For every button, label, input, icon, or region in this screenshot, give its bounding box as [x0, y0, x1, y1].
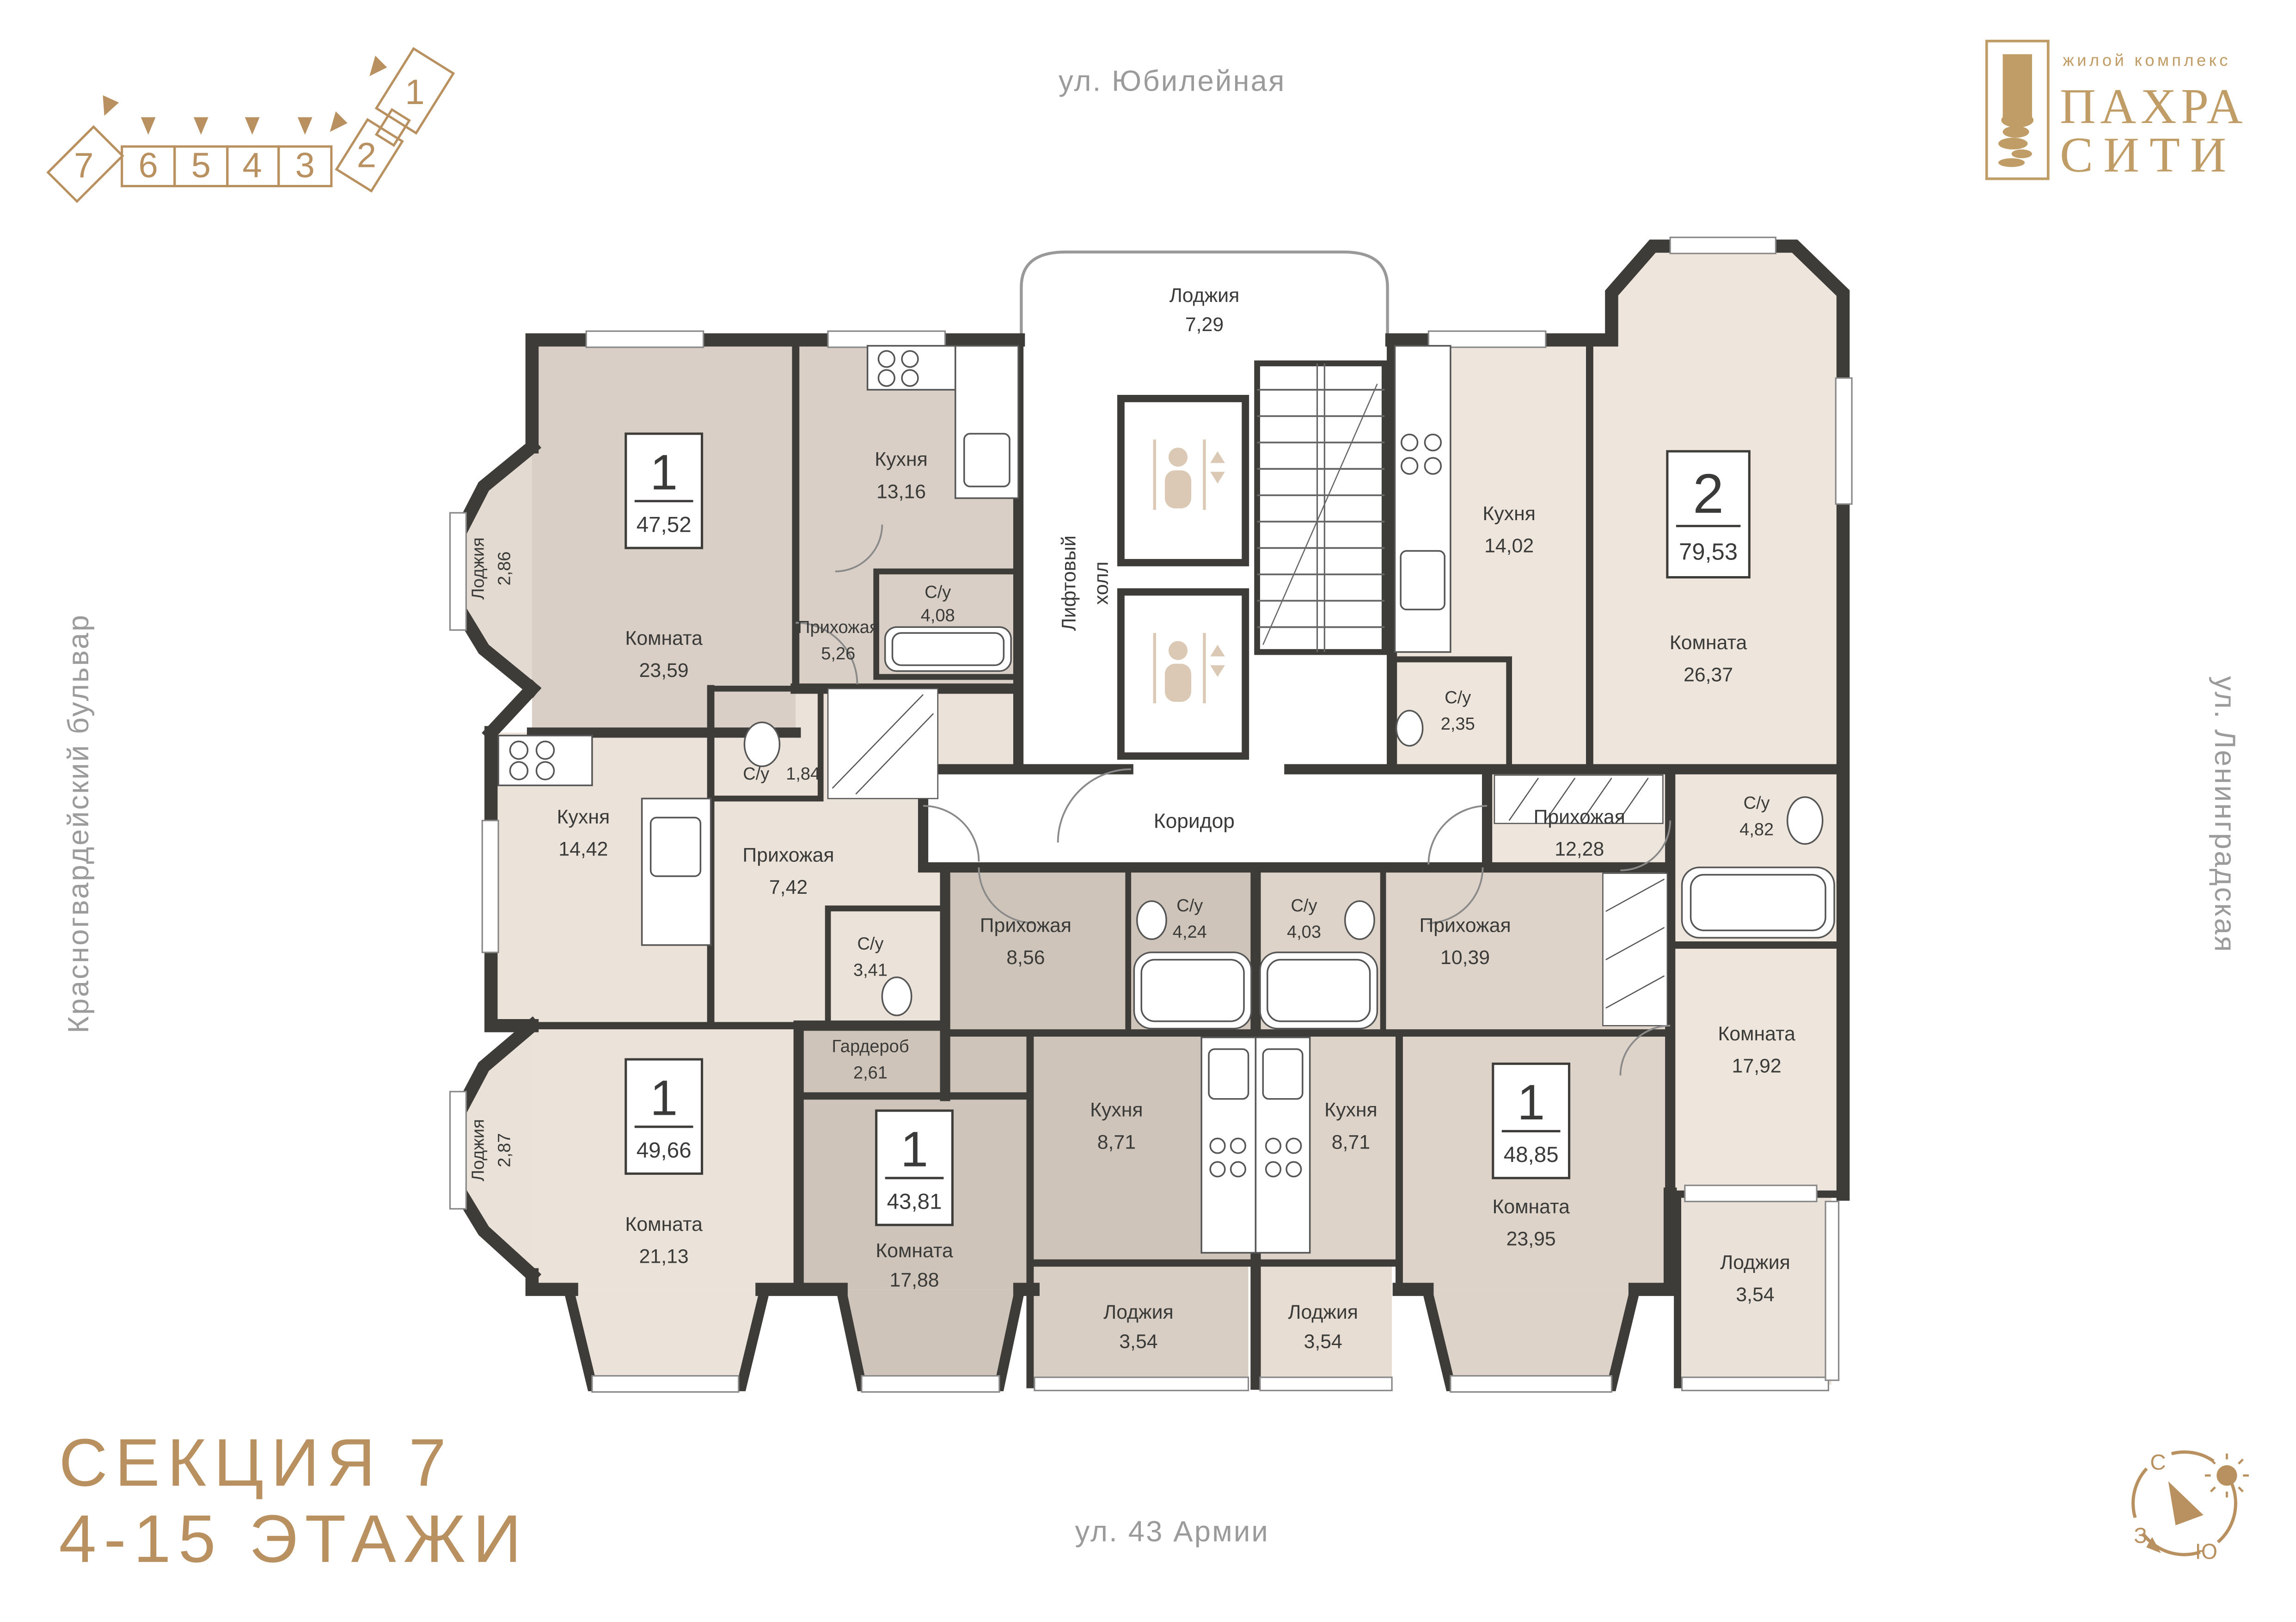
compass-west-label: З [2134, 1524, 2147, 1548]
logo-name-line1: ПАХРА [2060, 79, 2247, 134]
room-label: Лоджия [1103, 1301, 1174, 1323]
room-area: 4,08 [921, 606, 955, 626]
window [828, 331, 945, 347]
room-label: С/у [1176, 896, 1203, 915]
room-label: Прихожая [1419, 914, 1511, 936]
badge-apt-47-52: 1 47,52 [626, 434, 702, 548]
sink [1396, 711, 1423, 746]
loggia-rail [1260, 1377, 1392, 1391]
room-area: 5,26 [821, 644, 855, 664]
room-label: Лоджия [1169, 284, 1240, 307]
kitchen-sink [1263, 1049, 1303, 1099]
section-number: 1 [405, 73, 424, 112]
room-area: 7,42 [769, 876, 808, 898]
street-label-right: ул. Ленинградская [2209, 676, 2241, 953]
room-label: Лоджия [1288, 1301, 1358, 1323]
room-label: Кухня [557, 806, 610, 828]
window [1428, 331, 1546, 347]
badge-rooms-count: 1 [650, 444, 678, 500]
floor-plan-canvas: 1 47,52 2 79,53 1 49,66 1 43,81 1 48,85 [0, 0, 2296, 1622]
room-label: Кухня [1482, 503, 1535, 525]
room-label: С/у [925, 583, 951, 602]
room-area: 12,28 [1555, 838, 1604, 860]
room-area: 26,37 [1684, 664, 1733, 686]
section-number: 2 [357, 135, 376, 175]
logo-tagline: жилой комплекс [2063, 51, 2230, 70]
room-label: Прихожая [980, 914, 1071, 936]
street-label-left: Красногвардейский бульвар [62, 614, 95, 1033]
room-label: Гардероб [832, 1037, 909, 1056]
badge-total-area: 79,53 [1679, 539, 1738, 565]
room-area: 17,88 [890, 1269, 939, 1291]
badge-rooms-count: 1 [650, 1070, 678, 1126]
room-label: С/у [743, 764, 769, 784]
badge-total-area: 48,85 [1504, 1143, 1559, 1167]
loggia-rail [1825, 1202, 1839, 1381]
street-label-top: ул. Юбилейная [1059, 65, 1286, 97]
sink [1137, 901, 1166, 939]
kitchen-sink [1401, 551, 1445, 610]
room-label: Комната [1492, 1196, 1570, 1218]
section-number: 4 [243, 146, 262, 185]
kitchen-sink [651, 817, 701, 876]
room-area: 23,95 [1506, 1228, 1556, 1250]
badge-apt-79-53: 2 79,53 [1667, 451, 1749, 578]
badge-total-area: 43,81 [887, 1189, 942, 1214]
corridor-label: Коридор [1154, 810, 1235, 832]
apt-43-81-bay-area [841, 1290, 1020, 1386]
window [1836, 378, 1852, 504]
apt-48-85-loggia-area [1255, 1263, 1392, 1385]
logo-name-line2: СИТИ [2060, 128, 2236, 183]
bathtub [1134, 952, 1251, 1029]
room-area: 3,54 [1736, 1284, 1774, 1306]
room-area: 3,54 [1119, 1330, 1157, 1352]
window [450, 1092, 466, 1209]
room-label: Кухня [1324, 1099, 1377, 1121]
room-label: С/у [1445, 688, 1471, 707]
street-label-bottom: ул. 43 Армии [1075, 1516, 1269, 1548]
room-area: 2,35 [1441, 714, 1475, 734]
window [1685, 1186, 1817, 1202]
compass-arrow-icon [2168, 1481, 2204, 1525]
section-number: 3 [295, 146, 315, 185]
room-area: 14,42 [558, 838, 608, 860]
room-label: Кухня [1090, 1099, 1143, 1121]
window [592, 1376, 739, 1392]
compass: С З Ю [2133, 1450, 2249, 1564]
room-area: 8,56 [1006, 946, 1045, 969]
room-label: Комната [876, 1240, 953, 1262]
window [862, 1376, 999, 1392]
room-label: Лоджия [468, 537, 488, 600]
floor-plan-page: 1 47,52 2 79,53 1 49,66 1 43,81 1 48,85 [0, 0, 2296, 1622]
apt-48-85-bay-area [1427, 1290, 1635, 1386]
window [482, 821, 498, 952]
room-label: Комната [625, 1213, 703, 1235]
section-diagram: 7 6 5 4 3 2 1 [48, 49, 453, 201]
apt-43-81-wardrobe-area [799, 1026, 945, 1096]
section-title: СЕКЦИЯ 7 4-15 ЭТАЖИ [59, 1425, 528, 1576]
room-label: Комната [625, 627, 703, 649]
room-label: Комната [1670, 632, 1747, 654]
apt-49-66-bay-area [569, 1290, 765, 1386]
bathtub [885, 627, 1011, 671]
room-area: 8,71 [1097, 1131, 1136, 1153]
sink [1788, 797, 1823, 844]
room-area: 21,13 [639, 1246, 689, 1268]
room-label: Прихожая [742, 844, 834, 866]
badge-apt-49-66: 1 49,66 [626, 1059, 702, 1173]
room-area: 3,54 [1304, 1330, 1342, 1352]
room-label: Лоджия [1720, 1251, 1790, 1273]
room-area: 14,02 [1484, 535, 1534, 557]
section-number: 5 [191, 146, 211, 185]
sink [1345, 901, 1374, 939]
logo-column-icon [1998, 54, 2033, 167]
room-area: 23,59 [639, 659, 689, 682]
room-label: Комната [1718, 1023, 1795, 1045]
room-label: С/у [857, 934, 883, 953]
room-area: 8,71 [1332, 1131, 1370, 1153]
sink [744, 722, 779, 766]
badge-rooms-count: 2 [1693, 462, 1724, 525]
compass-north-label: С [2150, 1450, 2166, 1475]
badge-apt-48-85: 1 48,85 [1493, 1064, 1569, 1178]
room-area: 10,39 [1440, 946, 1490, 969]
section-title-line1: СЕКЦИЯ 7 [59, 1425, 453, 1500]
compass-south-label: Ю [2195, 1540, 2217, 1564]
room-area: 4,82 [1739, 820, 1774, 839]
section-number: 6 [139, 146, 158, 185]
section-title-line2: 4-15 ЭТАЖИ [59, 1501, 528, 1576]
room-label: Прихожая [1534, 806, 1625, 828]
kitchen-sink [964, 434, 1010, 486]
kitchen-sink [1209, 1049, 1249, 1099]
badge-apt-43-81: 1 43,81 [876, 1111, 953, 1225]
window [586, 331, 704, 347]
loggia-rail [1682, 1377, 1829, 1391]
loggia-rail [1035, 1377, 1249, 1391]
badge-rooms-count: 1 [1517, 1074, 1545, 1130]
section-number: 7 [74, 146, 93, 185]
room-label: С/у [1744, 793, 1770, 813]
room-area: 17,92 [1732, 1055, 1782, 1077]
bathtub [1682, 867, 1835, 938]
room-label: Лоджия [468, 1119, 488, 1181]
badge-total-area: 49,66 [637, 1138, 692, 1162]
room-area: 2,87 [495, 1133, 514, 1167]
room-area: 2,86 [495, 552, 514, 586]
room-area: 4,24 [1173, 922, 1207, 942]
logo: жилой комплекс ПАХРА СИТИ [1987, 41, 2247, 183]
room-area: 3,41 [853, 961, 888, 980]
room-area: 13,16 [876, 480, 926, 503]
lift-hall-label: Лифтовый [1058, 535, 1080, 631]
apt-43-81-loggia-area [1030, 1263, 1248, 1385]
sink [882, 977, 911, 1015]
lift-hall-label: холл [1090, 561, 1112, 605]
room-area: 1,84 [786, 764, 820, 784]
badge-total-area: 47,52 [637, 512, 692, 537]
window [450, 513, 466, 630]
section-diagram-arrows [103, 55, 387, 135]
room-area: 2,61 [853, 1063, 888, 1082]
room-area: 4,03 [1287, 922, 1321, 942]
window [1670, 237, 1776, 253]
apt-47-52-area [532, 340, 1018, 732]
staircase-box [1257, 363, 1385, 652]
room-area: 7,29 [1185, 313, 1224, 336]
window [1451, 1376, 1612, 1392]
room-label: С/у [1291, 896, 1317, 915]
room-label: Кухня [875, 449, 927, 471]
badge-rooms-count: 1 [900, 1121, 928, 1177]
room-label: Прихожая [797, 618, 879, 637]
bathtub [1260, 952, 1378, 1029]
sun-icon [2205, 1454, 2249, 1498]
